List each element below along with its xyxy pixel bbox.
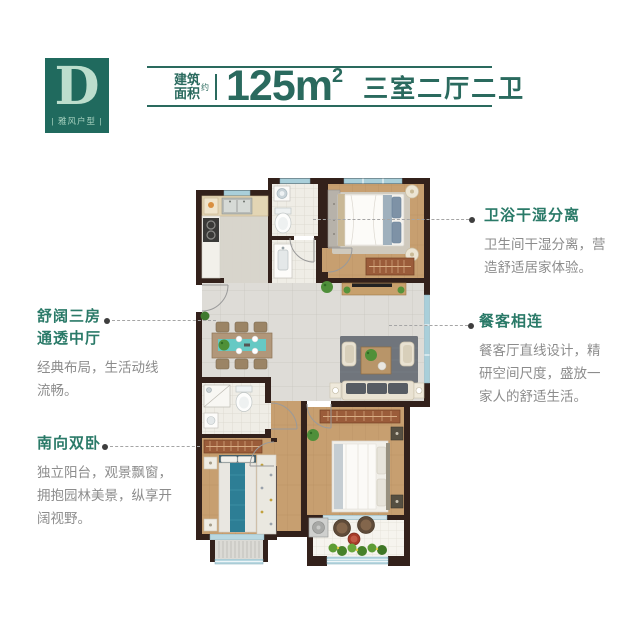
- plant-leaf: [324, 284, 327, 287]
- layout-spec: 三室二厅二卫: [363, 69, 525, 105]
- bed-right: [332, 441, 390, 512]
- connector-dot-hall: [104, 318, 110, 324]
- area-approx: 约: [201, 82, 209, 93]
- annotation-dining-body: 餐客厅直线设计，精 研空间尺度，盛放一 家人的舒适生活。: [479, 339, 601, 408]
- annotation-dining: 餐客相连 餐客厅直线设计，精 研空间尺度，盛放一 家人的舒适生活。: [479, 311, 601, 408]
- bed-left: [219, 455, 256, 532]
- connector-line-bath: [313, 219, 469, 220]
- annotation-hall-body: 经典布局，生活动线 流畅。: [37, 356, 159, 402]
- washing-machine: [274, 186, 290, 201]
- connector-dot-dining: [468, 323, 474, 329]
- shower: [204, 385, 230, 407]
- annotation-hall-title-2: 通透中厅: [37, 328, 159, 350]
- page: D | 雅风户型 | 建筑 面积 约 125m2 三室二厅二卫: [0, 0, 640, 640]
- toilet-main: [275, 208, 291, 233]
- logo-letter: D: [54, 59, 99, 115]
- connector-line-dining: [389, 325, 468, 326]
- area-unit: m: [295, 62, 332, 110]
- plant-bedroom-right: [307, 429, 319, 441]
- logo-badge: D | 雅风户型 |: [45, 58, 109, 133]
- plant-living-corner: [321, 281, 333, 293]
- annotation-south-bedrooms-body: 独立阳台，观景飘窗， 拥抱园林美景，纵享开 阔视野。: [37, 461, 172, 530]
- armchair-left: [342, 342, 356, 366]
- annotation-hall-title-1: 舒阔三房: [37, 306, 159, 328]
- area-label: 建筑 面积: [174, 73, 200, 101]
- rug-bedroom-left: [257, 455, 276, 534]
- bay-window-seat: [215, 540, 263, 559]
- connector-dot-bath: [469, 217, 475, 223]
- logo-label: | 雅风户型 |: [51, 115, 102, 127]
- sink-second-bath: [204, 413, 218, 428]
- annotation-dining-title: 餐客相连: [479, 311, 601, 333]
- header-divider: [215, 74, 217, 100]
- area-number: 125: [226, 62, 295, 110]
- annotation-bath: 卫浴干湿分离 卫生间干湿分离，营 造舒适居家体验。: [484, 205, 606, 279]
- connector-line-hall: [112, 320, 216, 321]
- toilet-second: [236, 386, 252, 412]
- tv-console: [342, 283, 406, 295]
- area-exponent: 2: [332, 65, 343, 87]
- wardrobe-bedroom-right: [320, 410, 400, 423]
- wardrobe-master: [366, 258, 414, 275]
- area-value: 125m2: [226, 65, 343, 108]
- annotation-bath-title: 卫浴干湿分离: [484, 205, 606, 227]
- annotation-bath-body: 卫生间干湿分离，营 造舒适居家体验。: [484, 233, 606, 279]
- armchair-right: [400, 342, 414, 366]
- area-label-top: 建筑: [174, 73, 200, 87]
- vanity-sink: [274, 244, 292, 278]
- connector-dot-south-bedrooms: [102, 444, 108, 450]
- wardrobe-bedroom-left: [204, 440, 262, 453]
- spec-header: 建筑 面积 约 125m2 三室二厅二卫: [147, 66, 492, 107]
- floor-plan: [196, 170, 448, 566]
- ac-unit: [309, 518, 328, 537]
- coffee-table: [361, 347, 391, 374]
- sofa: [342, 381, 414, 400]
- dining-set: [212, 322, 272, 369]
- master-bed: [338, 194, 404, 246]
- connector-line-south-bedrooms: [110, 446, 200, 447]
- area-label-bottom: 面积: [174, 87, 200, 101]
